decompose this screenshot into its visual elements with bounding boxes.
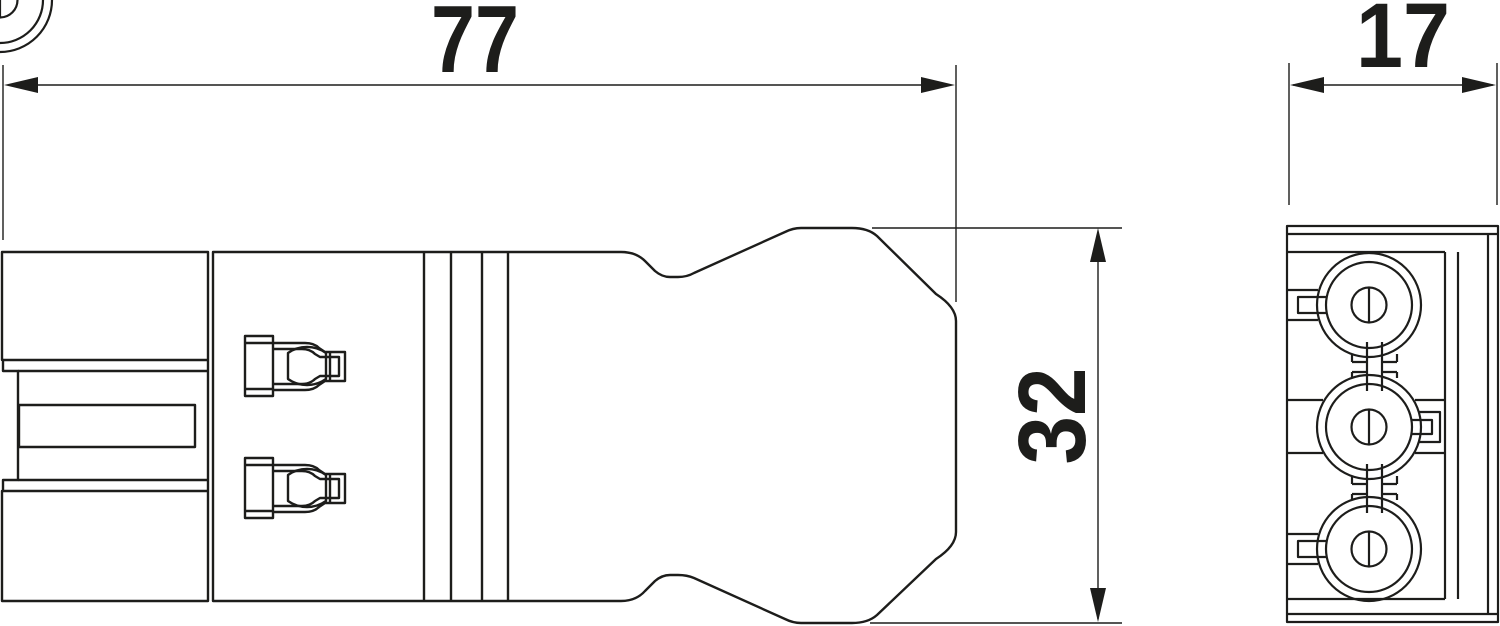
- dimension-height-label: 32: [999, 368, 1106, 465]
- front-view: [0, 0, 1498, 622]
- terminal-screw: [0, 0, 18, 18]
- dimension-length-lines: [3, 65, 956, 302]
- dimension-width: 17: [1289, 0, 1497, 205]
- connector-body-outline: [213, 228, 956, 623]
- dimension-length-label: 77: [431, 0, 519, 93]
- dimension-width-label: 17: [1356, 0, 1450, 87]
- arrowhead-right-icon: [921, 77, 955, 93]
- arrowhead-right2-icon: [1462, 77, 1496, 93]
- terminal-bottom-tab: [1287, 534, 1327, 564]
- clip-screw-head: [288, 347, 326, 385]
- terminal-rings: [0, 0, 52, 52]
- body-rib-lines: [424, 253, 508, 600]
- terminal-bottom: [1317, 497, 1421, 601]
- cable-housing-outline: [2, 252, 208, 601]
- technical-drawing-page: 77 32 17: [0, 0, 1500, 626]
- arrowhead-left-icon: [4, 77, 38, 93]
- terminal-middle-tab: [1411, 412, 1440, 442]
- connector-technical-drawing: 77 32 17: [0, 0, 1500, 626]
- arrowhead-up-icon: [1090, 228, 1106, 262]
- cable-housing-detail-lines: [2, 360, 208, 491]
- dimension-length: 77: [3, 0, 956, 302]
- side-view: [2, 228, 956, 623]
- arrowhead-left2-icon: [1290, 77, 1324, 93]
- clip-collar: [245, 336, 273, 396]
- terminal-outer-ring: [0, 0, 52, 52]
- arrowhead-down-icon: [1090, 588, 1106, 622]
- dimension-height: 32: [870, 228, 1122, 623]
- terminal-middle: [1317, 375, 1421, 479]
- terminal-top-tab: [1287, 290, 1327, 320]
- terminal-clip-lower: [245, 458, 345, 518]
- cable-slot: [19, 405, 195, 447]
- terminal-top: [1317, 253, 1421, 357]
- terminal-clip: [245, 336, 345, 396]
